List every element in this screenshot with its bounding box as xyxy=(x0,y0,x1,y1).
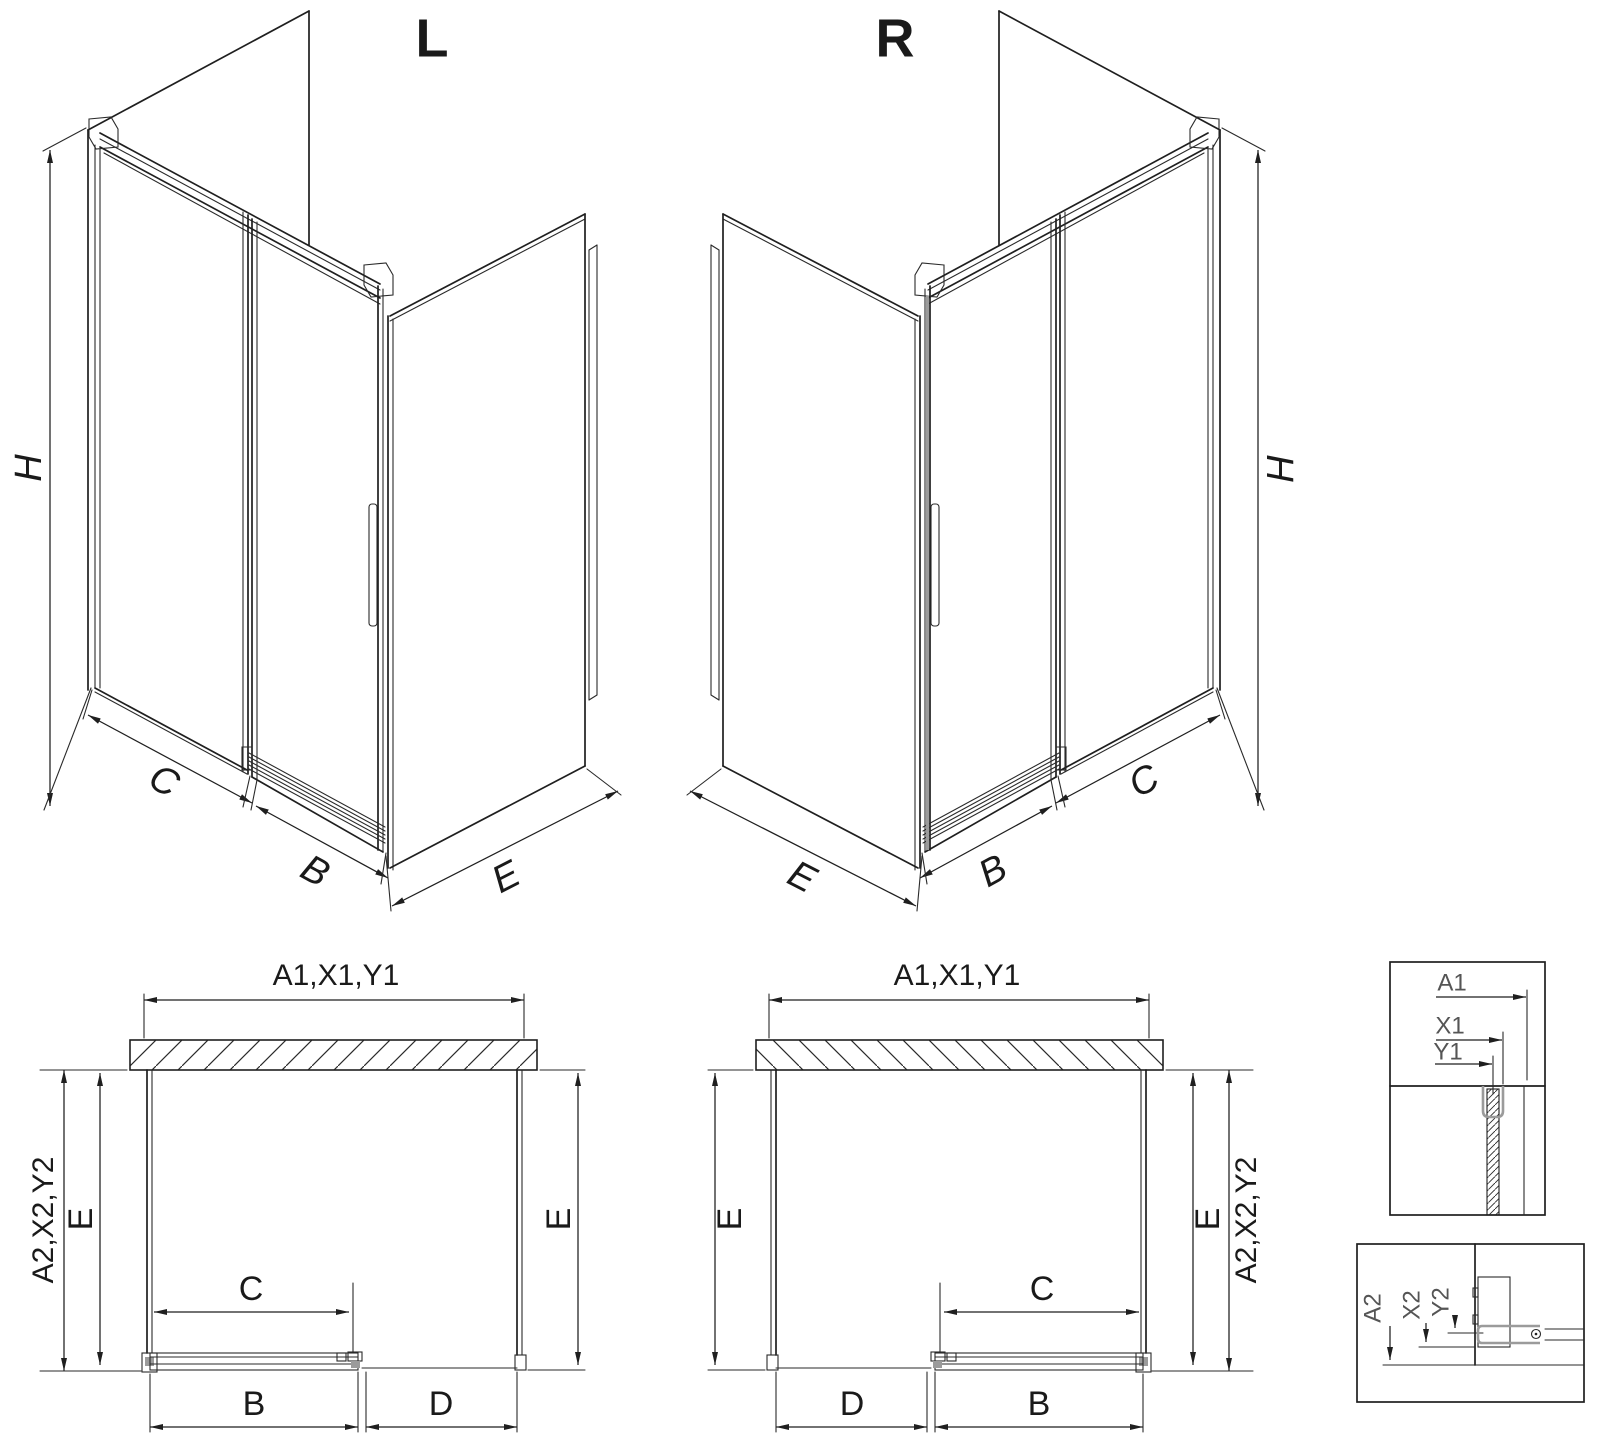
plan-door-track xyxy=(150,1352,362,1370)
view-title-right: R xyxy=(876,8,915,68)
plan-r-label-e-right: E xyxy=(1189,1208,1227,1231)
side-wall-strip xyxy=(589,245,597,700)
plan-side-glass-right xyxy=(515,1070,526,1370)
sliding-door-panel xyxy=(252,219,383,852)
dim-label-height-r: H xyxy=(1258,454,1300,482)
iso-enclosure-geometry xyxy=(43,11,621,911)
detail-label-a2: A2 xyxy=(1359,1293,1386,1322)
plan-l-label-e-left: E xyxy=(62,1208,100,1231)
plan-l-label-a2: A2,X2,Y2 xyxy=(27,1157,60,1284)
plan-l-label-a1: A1,X1,Y1 xyxy=(273,959,400,992)
plan-r-label-a1: A1,X1,Y1 xyxy=(894,959,1021,992)
iso-enclosure-geometry-mirrored xyxy=(687,11,1265,911)
shower-enclosure-diagram: L H C B E R H E B C xyxy=(0,0,1600,1438)
plan-r-label-d: D xyxy=(840,1385,865,1423)
plan-l-label-d: D xyxy=(429,1385,454,1423)
side-panel xyxy=(388,214,585,870)
wall-section-hatched xyxy=(130,1040,537,1070)
fixed-glass-panel xyxy=(95,212,248,774)
top-rail xyxy=(89,117,393,304)
plan-dim-a1 xyxy=(144,994,524,1038)
dim-label-door-l: B xyxy=(294,847,336,896)
plan-wall-profile-left xyxy=(142,1070,157,1372)
wall-profile xyxy=(95,145,100,688)
wall-bar-section xyxy=(1487,1089,1499,1215)
bottom-track xyxy=(242,747,385,843)
plan-view-geometry xyxy=(40,994,585,1432)
back-wall-outline xyxy=(88,11,309,690)
detail-bottom-profile-section: A2 X2 Y2 xyxy=(1357,1244,1584,1402)
plan-view-geometry-mirrored xyxy=(708,994,1253,1432)
plan-l-label-e-right: E xyxy=(540,1208,578,1231)
technical-drawing-page: L H C B E R H E B C xyxy=(0,0,1600,1438)
plan-r-label-a2: A2,X2,Y2 xyxy=(1230,1157,1263,1284)
detail-label-y1: Y1 xyxy=(1433,1038,1462,1065)
plan-l-label-c: C xyxy=(239,1270,264,1308)
plan-l-label-b: B xyxy=(243,1385,266,1423)
roller-channel-gray xyxy=(1478,1326,1540,1343)
plan-r-label-c: C xyxy=(1030,1270,1055,1308)
track-profile-section xyxy=(1473,1277,1583,1347)
dim-label-side-l: E xyxy=(485,852,527,901)
plan-r-label-b: B xyxy=(1028,1385,1051,1423)
view-title-left: L xyxy=(416,8,449,68)
detail-wall-profile-plan: A1 X1 Y1 xyxy=(1390,962,1545,1215)
detail-label-x2: X2 xyxy=(1398,1290,1425,1319)
dim-label-height-l: H xyxy=(8,454,50,482)
door-handle xyxy=(369,504,377,626)
plan-r-label-e-left: E xyxy=(711,1208,749,1231)
detail-label-y2: Y2 xyxy=(1427,1287,1454,1316)
detail-label-x1: X1 xyxy=(1435,1012,1464,1039)
detail-label-a1: A1 xyxy=(1437,969,1466,996)
dim-label-door-r: B xyxy=(972,847,1014,896)
dim-label-side-r: E xyxy=(781,853,823,902)
